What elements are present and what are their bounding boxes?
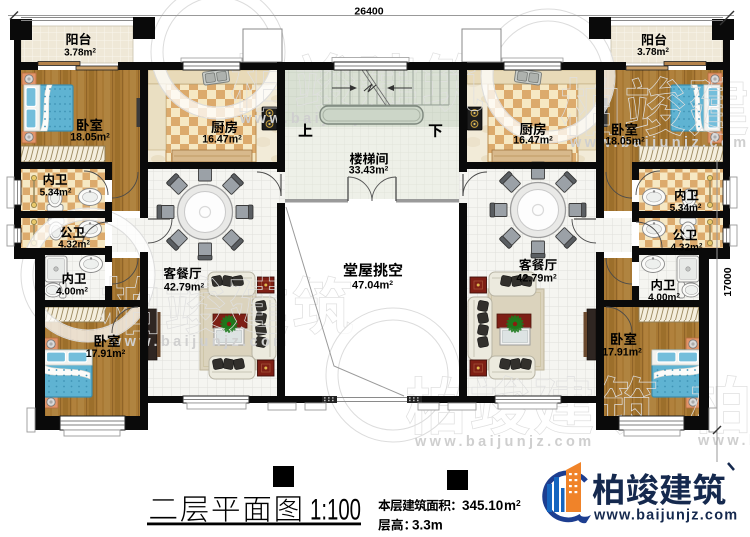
svg-text:www.baijunjz.com: www.baijunjz.com [109,334,290,350]
svg-text:4.00m2: 4.00m2 [56,287,88,298]
svg-text:26400: 26400 [354,6,383,18]
svg-text:42.79m2: 42.79m2 [164,282,205,294]
svg-text:4.32m2: 4.32m2 [58,240,90,251]
svg-text:4.00m2: 4.00m2 [648,293,680,304]
svg-text:17.91m2: 17.91m2 [86,348,126,360]
svg-text:18.05m2: 18.05m2 [70,132,110,144]
svg-text:16.47m2: 16.47m2 [202,134,242,146]
svg-text:16.47m2: 16.47m2 [513,135,553,147]
svg-text:33.43m2: 33.43m2 [349,165,389,177]
svg-text:42.79m2: 42.79m2 [516,273,557,285]
svg-text:www.baijunjz.com: www.baijunjz.com [414,434,595,450]
svg-text:www.baijunjz.com: www.baijunjz.com [697,433,750,449]
svg-text:1:100: 1:100 [310,494,361,527]
svg-text:3.78m2: 3.78m2 [64,48,96,59]
svg-text:17000: 17000 [722,267,734,296]
svg-text:5.34m2: 5.34m2 [670,203,702,214]
svg-text:17.91m2: 17.91m2 [602,347,642,359]
svg-text:www.baijunjz.com: www.baijunjz.com [593,508,738,524]
svg-text:5.34m2: 5.34m2 [40,188,72,199]
svg-text:3.3m: 3.3m [412,518,443,533]
svg-text:4.32m2: 4.32m2 [671,243,703,254]
svg-text:345.10: 345.10 [462,498,503,513]
svg-text:47.04m2: 47.04m2 [352,280,393,292]
svg-text:18.05m2: 18.05m2 [605,136,645,148]
svg-text:3.78m2: 3.78m2 [637,47,669,58]
